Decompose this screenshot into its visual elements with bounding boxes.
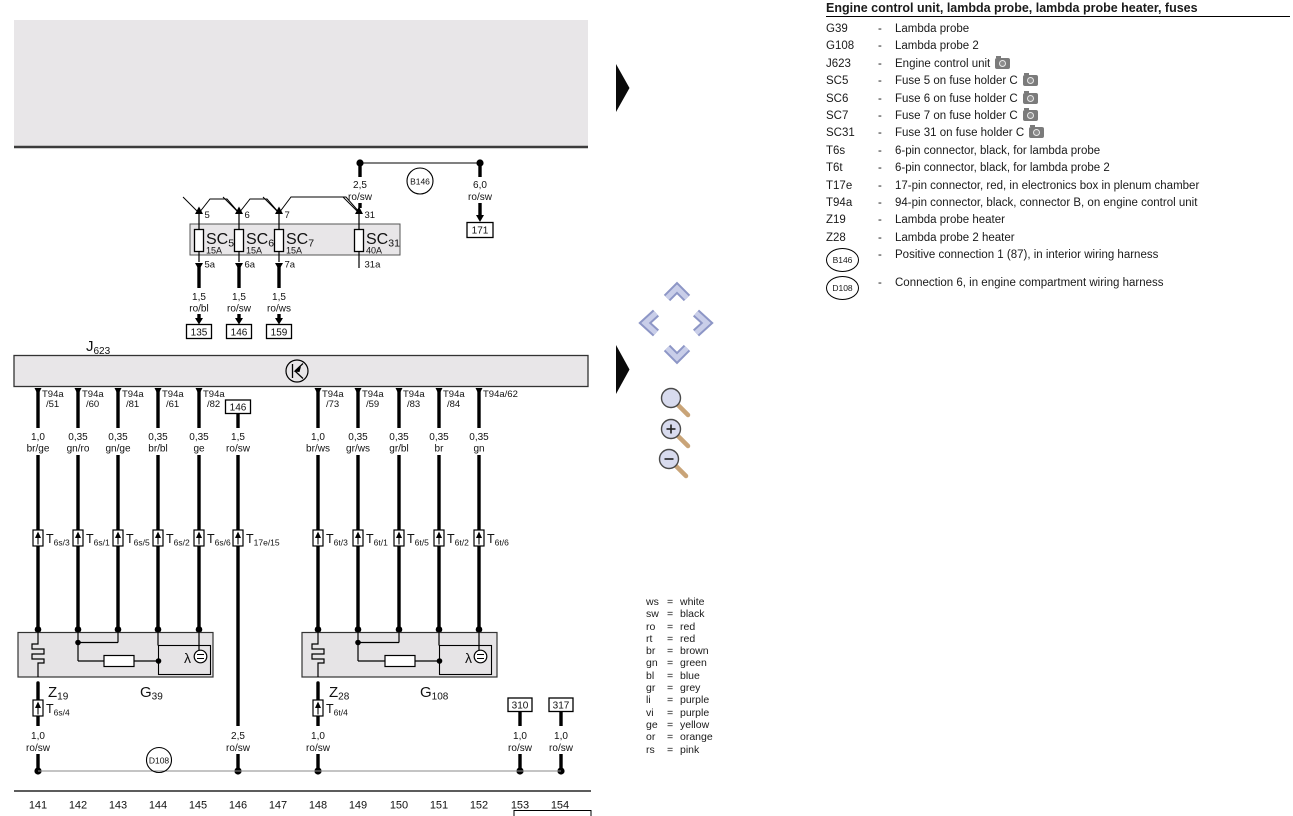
sensor-cell-symbol <box>194 650 207 663</box>
wire-color-label: ro/sw <box>348 192 373 203</box>
component-legend: Engine control unit, lambda probe, lambd… <box>826 1 1290 303</box>
legend-term: T17e <box>826 178 878 193</box>
legend-separator: - <box>878 56 895 71</box>
legend-row: SC31 - Fuse 31 on fuse holder C <box>826 125 1290 142</box>
lambda-symbol: λ <box>184 650 191 666</box>
ecu-pin-label: /83 <box>407 399 420 410</box>
top-panel <box>14 20 588 146</box>
fuse-group: SC515A55a1,5ro/bl135SC615A66a1,5ro/sw146… <box>183 197 400 339</box>
wire-color-label: ge <box>193 444 205 455</box>
color-code-name: yellow <box>680 719 709 731</box>
color-code-abbrev: rt <box>646 633 667 645</box>
down-arrow-icon <box>195 318 203 325</box>
heater-component-label-main: Z <box>329 684 338 701</box>
connector-label: T6t/4 <box>326 702 348 718</box>
wire-gauge-label: 0,35 <box>189 432 209 443</box>
connector-label: T6t/1 <box>366 532 388 548</box>
resistor-symbol <box>104 656 134 667</box>
lambda-symbol: λ <box>465 650 472 666</box>
down-arrow-icon <box>275 318 283 325</box>
wire-color-label: ro/sw <box>468 192 493 203</box>
heater-component-label-main: Z <box>48 684 57 701</box>
legend-term: SC31 <box>826 125 878 140</box>
fuse-pin-label: 7 <box>285 210 290 221</box>
legend-description-text: 17-pin connector, red, in electronics bo… <box>895 180 1199 192</box>
fuse-symbol <box>235 230 244 252</box>
wire-color-label: gn/ge <box>105 444 130 455</box>
connector-label-sub: 17e/15 <box>254 538 280 548</box>
legend-description-text: Fuse 6 on fuse holder C <box>895 93 1018 105</box>
track-reference-label: 171 <box>472 226 489 237</box>
legend-row: T94a - 94-pin connector, black, connecto… <box>826 195 1290 212</box>
legend-description: Positive connection 1 (87), in interior … <box>895 247 1290 262</box>
wire-gauge-label: 0,35 <box>68 432 88 443</box>
connector-label: T6s/2 <box>166 532 190 548</box>
resistor-symbol <box>385 656 415 667</box>
ecu-label: J623 <box>86 338 111 357</box>
wire-gauge-label: 1,0 <box>513 731 527 742</box>
connector-label-sub: 6t/3 <box>334 538 348 548</box>
fuse-pin-label: 6a <box>245 260 256 271</box>
track-number: 150 <box>390 800 408 812</box>
track-reference-label: 159 <box>271 328 288 339</box>
legend-row: SC5 - Fuse 5 on fuse holder C <box>826 73 1290 90</box>
track-number: 144 <box>149 800 167 812</box>
wire-gauge-label: 1,0 <box>311 731 325 742</box>
wire-color-label: ro/sw <box>306 743 331 754</box>
legend-description: Fuse 6 on fuse holder C <box>895 91 1290 106</box>
wire-gauge-label: 1,0 <box>31 731 45 742</box>
legend-description: Lambda probe <box>895 21 1290 36</box>
connector-label: T6s/4 <box>46 702 70 718</box>
color-code-equals: = <box>667 719 680 731</box>
color-code-equals: = <box>667 657 680 669</box>
color-code-abbrev: li <box>646 694 667 706</box>
legend-row: T17e - 17-pin connector, red, in electro… <box>826 178 1290 195</box>
color-code-row: sw = black <box>646 608 713 620</box>
wire-line <box>223 197 239 213</box>
probe-component-label-main: G <box>140 684 152 701</box>
ecu-pin-label: /82 <box>207 399 220 410</box>
ecu-pin-label: /59 <box>366 399 379 410</box>
section-marker-arrow-icon[interactable] <box>616 64 630 112</box>
legend-description: Lambda probe 2 heater <box>895 230 1290 245</box>
tap-310: 310 1,0 ro/sw <box>508 698 533 775</box>
fuse-symbol <box>355 230 364 252</box>
zoom-tool-icon[interactable] <box>662 389 689 416</box>
legend-separator: - <box>878 108 895 123</box>
track-reference-label: 317 <box>553 701 570 712</box>
legend-description: 94-pin connector, black, connector B, on… <box>895 195 1290 210</box>
color-code-equals: = <box>667 682 680 694</box>
ecu-pin-label: /60 <box>86 399 99 410</box>
legend-term: T6s <box>826 143 878 158</box>
wire-color-label: ro/sw <box>226 444 251 455</box>
legend-term: T6t <box>826 160 878 175</box>
connector-label-sub: 6s/3 <box>54 538 70 548</box>
wire-gauge-label: 2,5 <box>353 180 367 191</box>
legend-description: 6-pin connector, black, for lambda probe <box>895 143 1290 158</box>
viewer-controls <box>605 55 720 485</box>
legend-term: SC5 <box>826 73 878 88</box>
pan-left-icon[interactable] <box>645 313 656 333</box>
fuse-pin-label: 5a <box>205 260 216 271</box>
connector-label-sub: 6s/5 <box>134 538 150 548</box>
connector-label-sub: 6t/4 <box>334 708 348 718</box>
track-number: 143 <box>109 800 127 812</box>
connector-label: T6s/3 <box>46 532 70 548</box>
legend-description-text: Connection 6, in engine compartment wiri… <box>895 277 1163 289</box>
wire-gauge-label: 1,5 <box>192 292 206 303</box>
legend-term: J623 <box>826 56 878 71</box>
track-number: 153 <box>511 800 529 812</box>
wire-gauge-label: 0,35 <box>389 432 409 443</box>
track-numbers: 1411421431441451461471481491501511521531… <box>29 800 569 812</box>
wire-gauge-label: 1,5 <box>231 432 245 443</box>
legend-term: SC7 <box>826 108 878 123</box>
fuse-symbol <box>275 230 284 252</box>
wire-color-label: gr/bl <box>389 444 408 455</box>
wire-gauge-label: 1,0 <box>554 731 568 742</box>
legend-separator: - <box>878 125 895 140</box>
wire-gauge-label: 1,0 <box>31 432 45 443</box>
track-number: 142 <box>69 800 87 812</box>
bridge-wire <box>279 197 360 213</box>
color-code-name: purple <box>680 694 709 706</box>
legend-separator: - <box>878 160 895 175</box>
wire-gauge-label: 1,5 <box>232 292 246 303</box>
pan-up-icon[interactable] <box>667 288 687 298</box>
color-code-row: ro = red <box>646 621 713 633</box>
legend-description-text: Fuse 5 on fuse holder C <box>895 75 1018 87</box>
wire-color-label: br/ge <box>27 444 50 455</box>
wire-color-label: ro/bl <box>189 304 208 315</box>
legend-separator: - <box>878 143 895 158</box>
color-code-name: green <box>680 657 707 669</box>
fuse-amps-label: 15A <box>246 246 262 256</box>
heater-component-label-sub: 19 <box>57 692 69 703</box>
track-number: 146 <box>229 800 247 812</box>
legend-separator: - <box>878 21 895 36</box>
heater-component-label: Z28 <box>329 684 350 703</box>
wire-color-label: br/bl <box>148 444 167 455</box>
legend-separator: - <box>878 91 895 106</box>
color-code-abbrev: sw <box>646 608 667 620</box>
tap-317: 317 1,0 ro/sw <box>549 698 574 775</box>
wire-color-label: ro/ws <box>267 304 291 315</box>
sensor-cell-symbol <box>474 650 487 663</box>
track-reference-label: 310 <box>512 701 529 712</box>
legend-separator: - <box>878 247 895 262</box>
legend-description: Engine control unit <box>895 56 1290 71</box>
camera-icon[interactable] <box>1023 110 1038 121</box>
fuse-pin-label: 5 <box>205 210 210 221</box>
color-code-row: rs = pink <box>646 744 713 756</box>
color-code-row: br = brown <box>646 645 713 657</box>
wire-color-label: gr/ws <box>346 444 370 455</box>
connector-label-sub: 6t/1 <box>374 538 388 548</box>
connector-label: T6t/5 <box>407 532 429 548</box>
color-code-name: pink <box>680 744 699 756</box>
heater-component-label-sub: 28 <box>338 692 350 703</box>
wire-gauge-label: 0,35 <box>108 432 128 443</box>
track-number: 151 <box>430 800 448 812</box>
color-code-row: li = purple <box>646 694 713 706</box>
color-code-equals: = <box>667 596 680 608</box>
track-number: 148 <box>309 800 327 812</box>
legend-separator: - <box>878 275 895 290</box>
color-code-equals: = <box>667 707 680 719</box>
wire-gauge-label: 0,35 <box>469 432 489 443</box>
wire-color-label: gn <box>473 444 484 455</box>
ecu-pin-label: /51 <box>46 399 59 410</box>
wiring-diagram-page: 2,5 ro/sw B146 6,0 ro/sw 171 SC515A55a1,… <box>0 0 1293 816</box>
legend-description-text: Lambda probe 2 <box>895 40 979 52</box>
fuse-label-sub: 31 <box>388 238 400 250</box>
legend-row: B146 - Positive connection 1 (87), in in… <box>826 247 1290 275</box>
fuse-label-sub: 5 <box>228 238 234 250</box>
probe-component-label-main: G <box>420 684 432 701</box>
camera-icon[interactable] <box>995 58 1010 69</box>
legend-description: Fuse 31 on fuse holder C <box>895 125 1290 140</box>
color-code-name: white <box>680 596 705 608</box>
connector-label: T6t/3 <box>326 532 348 548</box>
probe-component-label: G108 <box>420 684 449 703</box>
fuse-pin-label: 6 <box>245 210 250 221</box>
connector-label-sub: 6t/2 <box>455 538 469 548</box>
lambda-probe-boxes: λZ19G39T6s/41,0ro/swλZ28G108T6t/41,0ro/s… <box>18 630 497 775</box>
legend-separator: - <box>878 178 895 193</box>
legend-term: G108 <box>826 38 878 53</box>
track-number: 149 <box>349 800 367 812</box>
legend-row: Z28 - Lambda probe 2 heater <box>826 230 1290 247</box>
connector-label-sub: 6t/6 <box>495 538 509 548</box>
wire-color-code: ws = white sw = black ro = red rt = red … <box>646 596 713 756</box>
legend-separator: - <box>878 195 895 210</box>
color-code-abbrev: gr <box>646 682 667 694</box>
connector-label-sub: 6s/2 <box>174 538 190 548</box>
legend-list: G39 - Lambda probe G108 - Lambda probe 2… <box>826 21 1290 303</box>
legend-row: D108 - Connection 6, in engine compartme… <box>826 275 1290 303</box>
legend-description-text: 94-pin connector, black, connector B, on… <box>895 197 1197 209</box>
ecu-pin-label: T94a/62 <box>483 389 518 400</box>
legend-description-text: 6-pin connector, black, for lambda probe… <box>895 162 1110 174</box>
track-reference-label: 146 <box>231 328 248 339</box>
color-code-row: vi = purple <box>646 707 713 719</box>
fuse-symbol <box>195 230 204 252</box>
color-code-abbrev: or <box>646 731 667 743</box>
legend-term: Z19 <box>826 212 878 227</box>
fuse-pin-label: 31 <box>365 210 376 221</box>
wire-gauge-label: 2,5 <box>231 731 245 742</box>
legend-term: B146 <box>826 248 859 272</box>
legend-separator: - <box>878 230 895 245</box>
wire-color-label: ro/sw <box>227 304 252 315</box>
probe-component-label-sub: 39 <box>152 692 164 703</box>
track-reference-label: 135 <box>191 328 208 339</box>
camera-icon[interactable] <box>1029 127 1044 138</box>
legend-description: 17-pin connector, red, in electronics bo… <box>895 178 1290 193</box>
wire-gauge-label: 0,35 <box>148 432 168 443</box>
wire-gauge-label: 0,35 <box>429 432 449 443</box>
legend-term: G39 <box>826 21 878 36</box>
color-code-name: grey <box>680 682 700 694</box>
connector-label: T6t/6 <box>487 532 509 548</box>
color-code-equals: = <box>667 694 680 706</box>
color-code-row: ws = white <box>646 596 713 608</box>
color-code-row: rt = red <box>646 633 713 645</box>
ecu-label-main: J <box>86 338 94 355</box>
color-code-name: brown <box>680 645 709 657</box>
connector-label-sub: 6s/1 <box>94 538 110 548</box>
ecu-pin-label: /81 <box>126 399 139 410</box>
color-code-abbrev: rs <box>646 744 667 756</box>
down-arrow-icon <box>476 215 484 222</box>
legend-row: J623 - Engine control unit <box>826 56 1290 73</box>
camera-icon[interactable] <box>1023 75 1038 86</box>
legend-term: SC6 <box>826 91 878 106</box>
fuse-label-sub: 7 <box>308 238 314 250</box>
color-code-row: or = orange <box>646 731 713 743</box>
legend-description: Lambda probe 2 <box>895 38 1290 53</box>
wire-color-label: ro/sw <box>549 743 574 754</box>
track-number: 154 <box>551 800 569 812</box>
legend-description-text: Engine control unit <box>895 58 990 70</box>
color-code-equals: = <box>667 670 680 682</box>
wire-line <box>183 197 199 213</box>
ecu-pin-label: /84 <box>447 399 460 410</box>
wire-color-label: br <box>435 444 445 455</box>
legend-description: Fuse 7 on fuse holder C <box>895 108 1290 123</box>
legend-row: SC6 - Fuse 6 on fuse holder C <box>826 91 1290 108</box>
color-code-abbrev: ge <box>646 719 667 731</box>
legend-row: G108 - Lambda probe 2 <box>826 38 1290 55</box>
legend-term: T94a <box>826 195 878 210</box>
legend-term: D108 <box>826 276 859 300</box>
connector-label-sub: 6s/6 <box>215 538 231 548</box>
probe-component-label: G39 <box>140 684 163 703</box>
fuse-amps-label: 40A <box>366 246 382 256</box>
connector-label-sub: 6t/5 <box>415 538 429 548</box>
wire-color-label: ro/sw <box>26 743 51 754</box>
page-title: Engine control unit, lambda probe, lambd… <box>826 1 1290 17</box>
legend-row: T6t - 6-pin connector, black, for lambda… <box>826 160 1290 177</box>
wire-line <box>263 197 279 213</box>
pan-down-icon[interactable] <box>667 348 687 358</box>
track-number: 147 <box>269 800 287 812</box>
legend-separator: - <box>878 73 895 88</box>
legend-description-text: Lambda probe 2 heater <box>895 232 1015 244</box>
heater-component-label: Z19 <box>48 684 69 703</box>
color-code-name: blue <box>680 670 700 682</box>
color-code-abbrev: gn <box>646 657 667 669</box>
legend-description-text: Positive connection 1 (87), in interior … <box>895 249 1158 261</box>
color-code-name: red <box>680 621 695 633</box>
ecu-pin-label: /73 <box>326 399 339 410</box>
color-code-equals: = <box>667 621 680 633</box>
color-code-equals: = <box>667 645 680 657</box>
legend-description: Connection 6, in engine compartment wiri… <box>895 275 1290 290</box>
connection-node-label: B146 <box>410 177 430 187</box>
fuse-amps-label: 15A <box>206 246 222 256</box>
legend-description-text: Fuse 7 on fuse holder C <box>895 110 1018 122</box>
legend-description: Fuse 5 on fuse holder C <box>895 73 1290 88</box>
wire-gauge-label: 1,0 <box>311 432 325 443</box>
connector-label: T17e/15 <box>246 532 280 548</box>
color-code-abbrev: bl <box>646 670 667 682</box>
color-code-abbrev: ro <box>646 621 667 633</box>
wire-gauge-label: 0,35 <box>348 432 368 443</box>
connector-label: T6s/5 <box>126 532 150 548</box>
legend-row: T6s - 6-pin connector, black, for lambda… <box>826 143 1290 160</box>
color-code-name: purple <box>680 707 709 719</box>
wire-color-label: gn/ro <box>67 444 90 455</box>
connector-label: T6s/6 <box>207 532 231 548</box>
legend-separator: - <box>878 38 895 53</box>
legend-description: Lambda probe heater <box>895 212 1290 227</box>
color-code-name: red <box>680 633 695 645</box>
schematic-canvas: 2,5 ro/sw B146 6,0 ro/sw 171 SC515A55a1,… <box>0 0 620 816</box>
legend-row: G39 - Lambda probe <box>826 21 1290 38</box>
color-code-equals: = <box>667 744 680 756</box>
color-code-row: gn = green <box>646 657 713 669</box>
color-code-row: ge = yellow <box>646 719 713 731</box>
color-code-abbrev: vi <box>646 707 667 719</box>
diagram-code-box <box>514 811 591 816</box>
color-code-name: orange <box>680 731 713 743</box>
wire-color-label: ro/sw <box>508 743 533 754</box>
wire-gauge-label: 1,5 <box>272 292 286 303</box>
legend-description-text: Fuse 31 on fuse holder C <box>895 127 1024 139</box>
color-code-row: gr = grey <box>646 682 713 694</box>
connector-label-sub: 6s/4 <box>54 708 70 718</box>
fuse-label-sub: 6 <box>268 238 274 250</box>
track-number: 141 <box>29 800 47 812</box>
track-number: 152 <box>470 800 488 812</box>
legend-description-text: Lambda probe heater <box>895 214 1005 226</box>
camera-icon[interactable] <box>1023 93 1038 104</box>
track-reference-label: 146 <box>230 403 247 414</box>
fuse-pin-label: 7a <box>285 260 296 271</box>
section-marker-arrow-icon[interactable] <box>616 345 630 394</box>
connector-label: T6t/2 <box>447 532 469 548</box>
ecu-pin-label: /61 <box>166 399 179 410</box>
connector-label: T6s/1 <box>86 532 110 548</box>
down-arrow-icon <box>235 318 243 325</box>
legend-term: Z28 <box>826 230 878 245</box>
wire-color-label: ro/sw <box>226 743 251 754</box>
color-code-equals: = <box>667 731 680 743</box>
track-number: 145 <box>189 800 207 812</box>
probe-component-label-sub: 108 <box>432 692 449 703</box>
color-code-abbrev: ws <box>646 596 667 608</box>
legend-separator: - <box>878 212 895 227</box>
legend-row: SC7 - Fuse 7 on fuse holder C <box>826 108 1290 125</box>
legend-description-text: 6-pin connector, black, for lambda probe <box>895 145 1100 157</box>
color-code-equals: = <box>667 633 680 645</box>
color-code-equals: = <box>667 608 680 620</box>
zoom-in-icon[interactable] <box>662 420 689 447</box>
pan-right-icon[interactable] <box>696 313 707 333</box>
color-code-abbrev: br <box>646 645 667 657</box>
wire-color-label: br/ws <box>306 444 330 455</box>
wire-columns: T94a/511,0br/geT6s/3T94a/600,35gn/roT6s/… <box>27 388 518 775</box>
color-code-name: black <box>680 608 705 620</box>
zoom-out-icon[interactable] <box>660 450 687 477</box>
legend-description-text: Lambda probe <box>895 23 969 35</box>
connection-node-label: D108 <box>149 756 170 766</box>
fuse-pin-label: 31a <box>365 260 382 271</box>
